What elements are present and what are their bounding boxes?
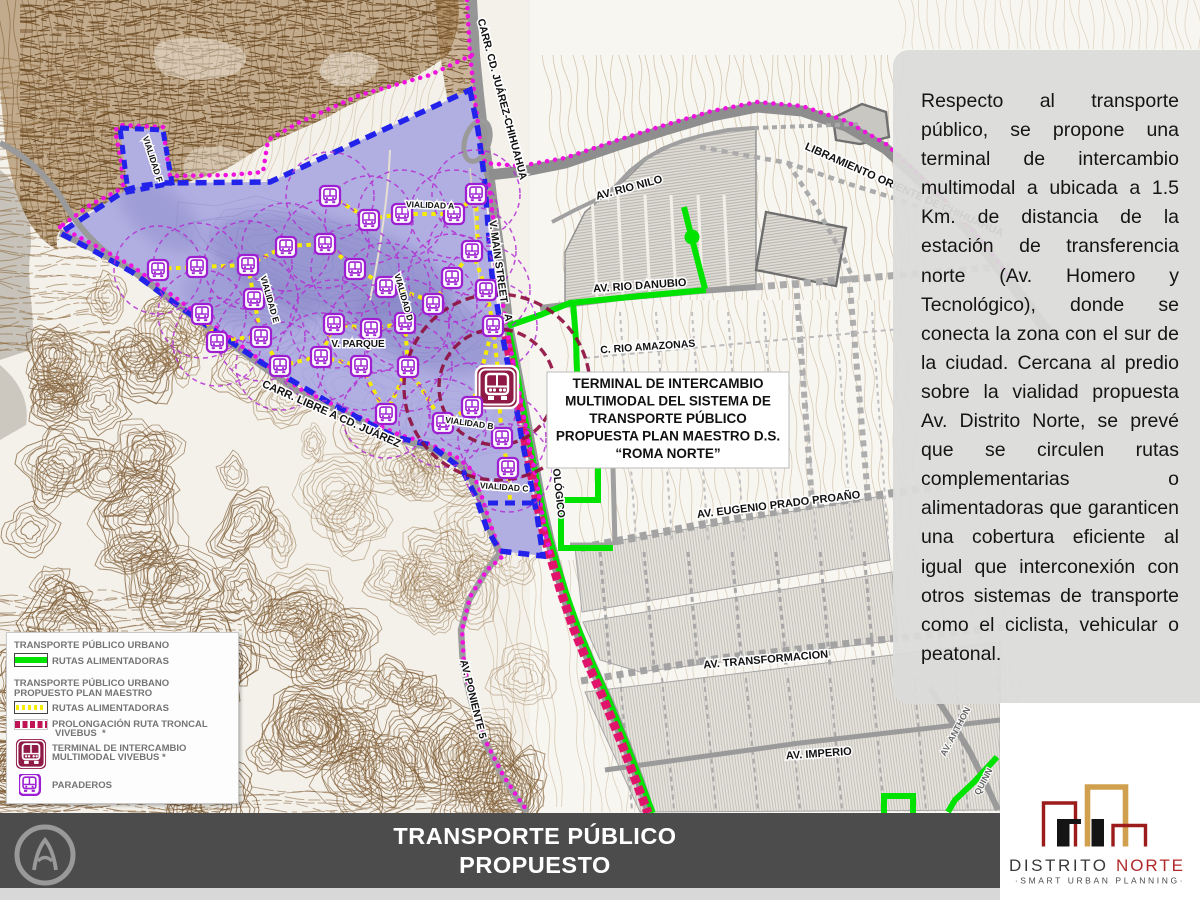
svg-text:NORTE: NORTE: [1116, 856, 1183, 875]
svg-text:VIALIDAD A: VIALIDAD A: [406, 199, 455, 211]
svg-text:TRANSPORTE PÚBLICO: TRANSPORTE PÚBLICO: [589, 411, 747, 426]
svg-text:V. PARQUE: V. PARQUE: [331, 339, 385, 350]
svg-text:“ROMA NORTE”: “ROMA NORTE”: [615, 446, 720, 461]
svg-text:·SMART URBAN PLANNING·: ·SMART URBAN PLANNING·: [1015, 876, 1185, 886]
svg-text:TERMINAL DE INTERCAMBIO: TERMINAL DE INTERCAMBIO: [573, 376, 764, 391]
svg-text:PROPUESTA PLAN MAESTRO D.S.: PROPUESTA PLAN MAESTRO D.S.: [556, 429, 780, 444]
svg-text:MULTIMODAL DEL SISTEMA DE: MULTIMODAL DEL SISTEMA DE: [565, 394, 771, 409]
svg-text:DISTRITO: DISTRITO: [1009, 856, 1106, 875]
